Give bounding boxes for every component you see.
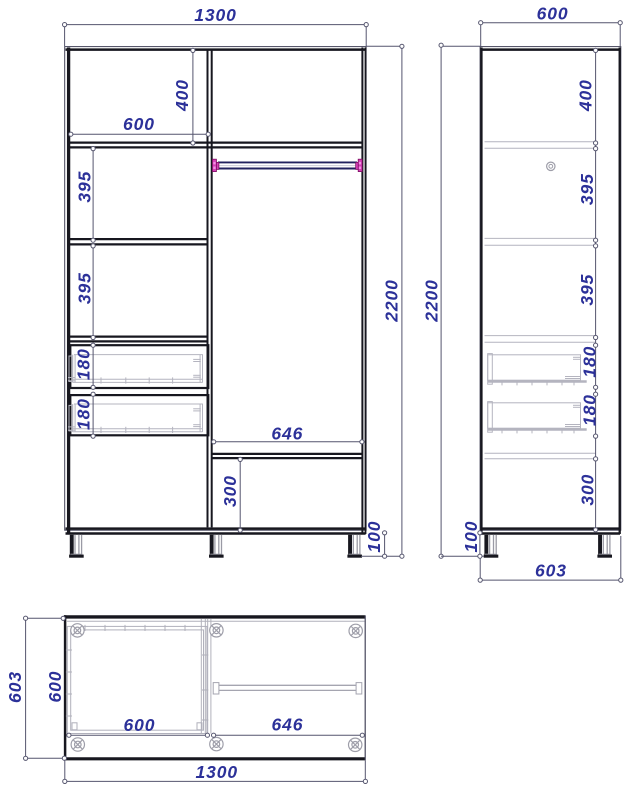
svg-text:1300: 1300: [194, 5, 237, 25]
svg-text:603: 603: [535, 561, 567, 581]
svg-text:100: 100: [364, 521, 384, 553]
svg-text:600: 600: [123, 715, 155, 735]
svg-text:600: 600: [537, 3, 569, 23]
svg-text:395: 395: [75, 272, 95, 304]
svg-text:395: 395: [75, 171, 95, 203]
svg-text:646: 646: [271, 714, 303, 734]
svg-text:300: 300: [578, 474, 598, 506]
svg-text:395: 395: [577, 274, 597, 306]
svg-text:400: 400: [576, 79, 596, 112]
svg-text:1300: 1300: [196, 762, 239, 782]
svg-text:180: 180: [73, 348, 93, 380]
svg-text:395: 395: [577, 173, 597, 205]
svg-text:180: 180: [580, 346, 600, 378]
svg-text:180: 180: [73, 398, 93, 430]
svg-text:400: 400: [172, 79, 192, 112]
svg-text:2200: 2200: [421, 279, 441, 323]
svg-text:600: 600: [123, 114, 155, 134]
svg-text:603: 603: [5, 671, 25, 703]
svg-text:600: 600: [45, 671, 65, 703]
svg-text:2200: 2200: [382, 279, 402, 323]
svg-text:180: 180: [580, 394, 600, 426]
svg-text:100: 100: [461, 521, 481, 553]
svg-text:300: 300: [220, 475, 240, 507]
svg-text:646: 646: [271, 423, 303, 443]
